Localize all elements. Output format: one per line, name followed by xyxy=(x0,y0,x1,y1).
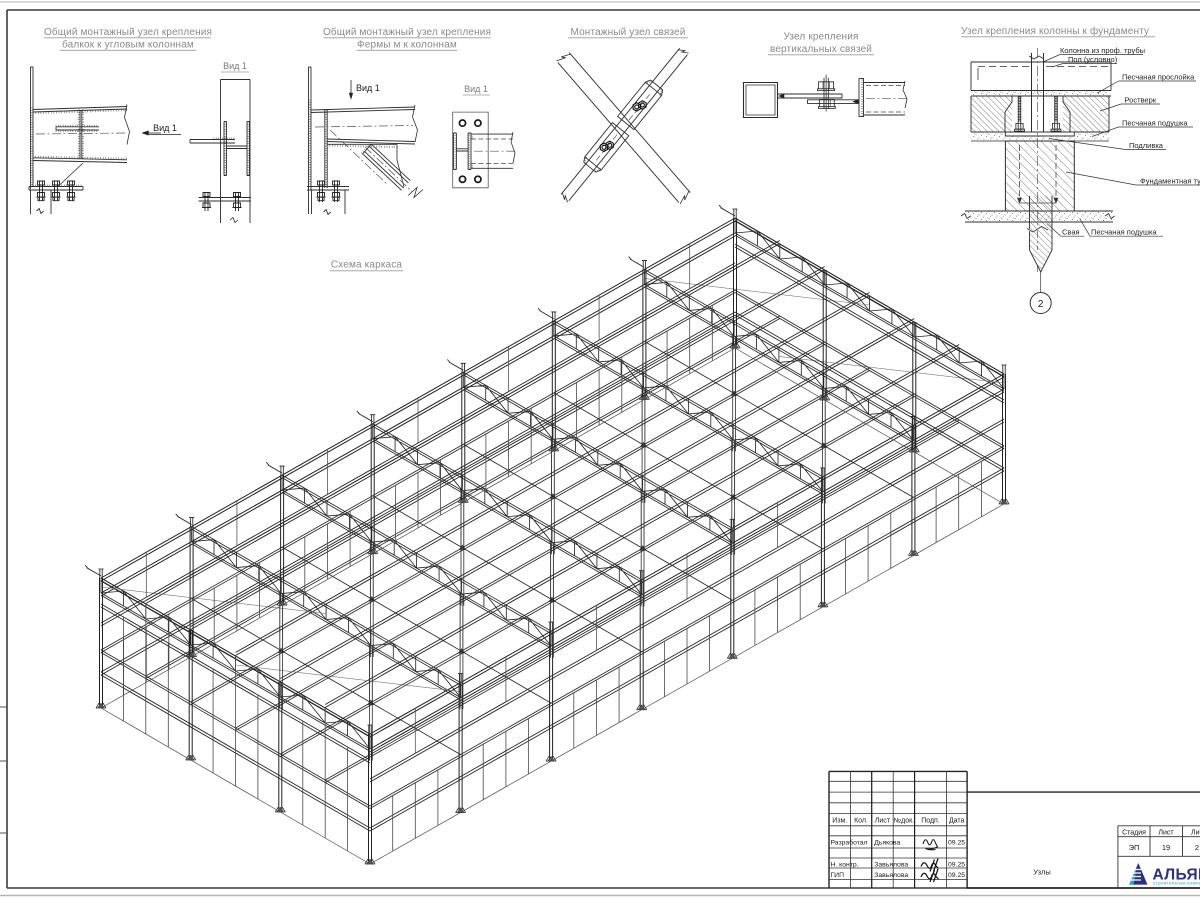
svg-text:Вид 1: Вид 1 xyxy=(356,83,380,93)
svg-text:Разработал: Разработал xyxy=(831,839,868,847)
svg-text:Подливка: Подливка xyxy=(1129,141,1164,150)
svg-text:Песчаная прослойка: Песчаная прослойка xyxy=(1122,73,1195,82)
svg-text:Общий монтажный узел крепления: Общий монтажный узел крепления xyxy=(44,26,212,38)
svg-text:Вид 1: Вид 1 xyxy=(464,84,488,94)
svg-text:Завьялова: Завьялова xyxy=(874,872,908,879)
svg-text:09.25: 09.25 xyxy=(948,872,965,879)
svg-text:Кол.: Кол. xyxy=(854,818,868,825)
svg-text:2: 2 xyxy=(1195,843,1199,852)
svg-text:ЭП: ЭП xyxy=(1129,843,1140,852)
svg-text:Песчаная подушка: Песчаная подушка xyxy=(1091,228,1157,237)
svg-text:Свая: Свая xyxy=(1062,228,1080,237)
svg-text:Лист: Лист xyxy=(875,818,891,825)
svg-text:09.25: 09.25 xyxy=(948,840,965,847)
svg-text:2: 2 xyxy=(1038,299,1044,310)
svg-text:Вид 1: Вид 1 xyxy=(153,123,177,133)
svg-text:строительная компания: строительная компания xyxy=(1153,880,1200,885)
svg-text:Дьякова: Дьякова xyxy=(874,840,900,847)
svg-text:Изм.: Изм. xyxy=(832,818,847,825)
svg-text:Общий монтажный узел крепления: Общий монтажный узел крепления xyxy=(323,26,491,38)
svg-text:19: 19 xyxy=(1162,843,1170,852)
svg-text:Стадия: Стадия xyxy=(1122,829,1146,836)
svg-text:Фундаментная тумба: Фундаментная тумба xyxy=(1140,177,1200,186)
svg-text:Завьялова: Завьялова xyxy=(874,861,908,868)
svg-text:Схема каркаса: Схема каркаса xyxy=(331,260,403,271)
svg-text:Пол (условно): Пол (условно) xyxy=(1068,55,1118,64)
svg-text:Узел крепления колонны к фунда: Узел крепления колонны к фундаменту xyxy=(961,25,1149,37)
svg-text:Лист: Лист xyxy=(1158,829,1174,836)
svg-text:вертикальных связей: вертикальных связей xyxy=(770,44,872,55)
svg-text:Узлы: Узлы xyxy=(1033,868,1050,877)
svg-text:балкок к угловым колоннам: балкок к угловым колоннам xyxy=(62,39,194,51)
svg-text:Фермы м к колоннам: Фермы м к колоннам xyxy=(357,40,457,51)
svg-text:Песчаная подушка: Песчаная подушка xyxy=(1122,119,1188,128)
svg-text:Колонна из проф. трубы: Колонна из проф. трубы xyxy=(1060,46,1145,55)
svg-text:№док.: №док. xyxy=(894,818,915,825)
svg-text:ГИП: ГИП xyxy=(831,872,845,879)
svg-text:Монтажный узел связей: Монтажный узел связей xyxy=(570,27,685,38)
svg-text:Лис: Лис xyxy=(1191,829,1200,836)
svg-text:Дата: Дата xyxy=(949,818,965,825)
svg-text:Узел крепления: Узел крепления xyxy=(783,32,858,43)
svg-text:Подп.: Подп. xyxy=(921,818,940,825)
svg-text:Вид 1: Вид 1 xyxy=(223,61,247,71)
svg-text:Ростверк: Ростверк xyxy=(1125,96,1157,105)
svg-text:Н. контр.: Н. контр. xyxy=(831,861,859,868)
svg-text:09.25: 09.25 xyxy=(948,861,965,868)
